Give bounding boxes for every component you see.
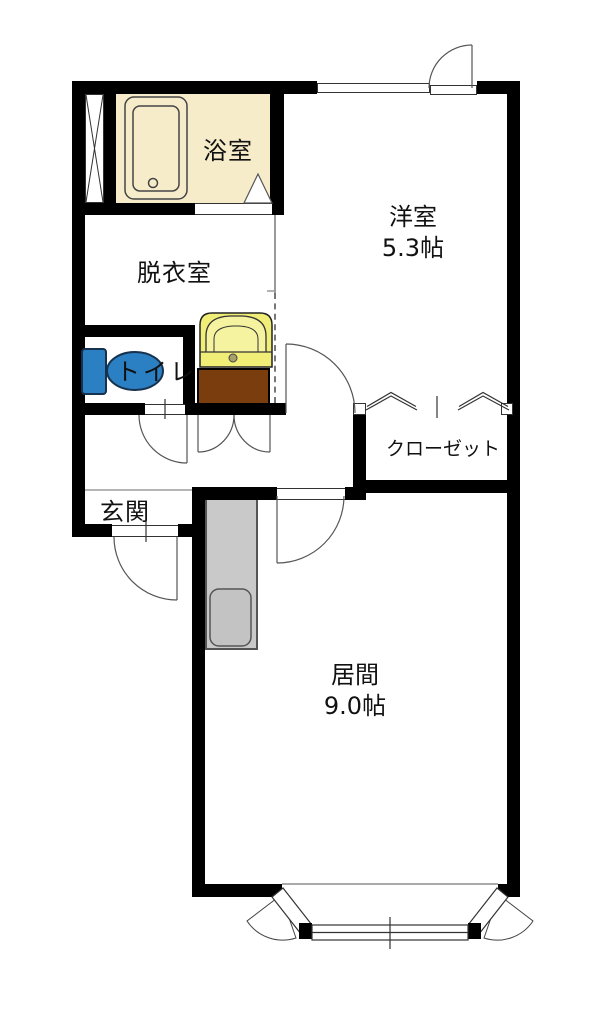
living-room-size: 9.0帖 xyxy=(300,691,410,722)
living-room-name: 居間 xyxy=(300,660,410,691)
door-swings xyxy=(114,45,472,600)
bay-mullion-left xyxy=(299,923,312,939)
floor-plan: 浴室 脱衣室 トイレ 洋室 5.3帖 クローゼット 玄関 居間 9.0帖 xyxy=(0,0,610,1024)
washer-space-double-door-swing xyxy=(198,415,270,452)
western-room-size: 5.3帖 xyxy=(358,233,468,264)
plan-linework xyxy=(0,0,610,1024)
bay-mullion-right xyxy=(468,923,481,939)
bathtub-icon xyxy=(125,97,187,199)
bathroom-folding-door-icon xyxy=(244,174,272,203)
entrance-door-swing xyxy=(114,520,177,600)
living-room-label: 居間 9.0帖 xyxy=(300,660,410,722)
toilet-label: トイレ xyxy=(116,352,197,387)
closet-label: クローゼット xyxy=(386,434,500,461)
closet-folding-doors-icon xyxy=(366,393,509,419)
bay-window xyxy=(247,884,533,949)
living-room-door-swing xyxy=(277,496,344,563)
pipe-shaft-x-icon xyxy=(86,95,103,202)
western-room-name: 洋室 xyxy=(358,202,468,233)
bathroom-label: 浴室 xyxy=(203,131,253,166)
sliding-window-icon xyxy=(312,917,468,949)
western-room-top-door-swing xyxy=(429,45,472,88)
washbasin-icon xyxy=(200,313,272,367)
kitchen-sink-icon xyxy=(210,589,251,646)
dressing-room-label: 脱衣室 xyxy=(137,253,212,288)
entrance-label: 玄関 xyxy=(100,492,150,527)
toilet-door-swing xyxy=(139,399,187,463)
western-room-door-swing xyxy=(286,344,355,413)
western-room-label: 洋室 5.3帖 xyxy=(358,202,468,264)
